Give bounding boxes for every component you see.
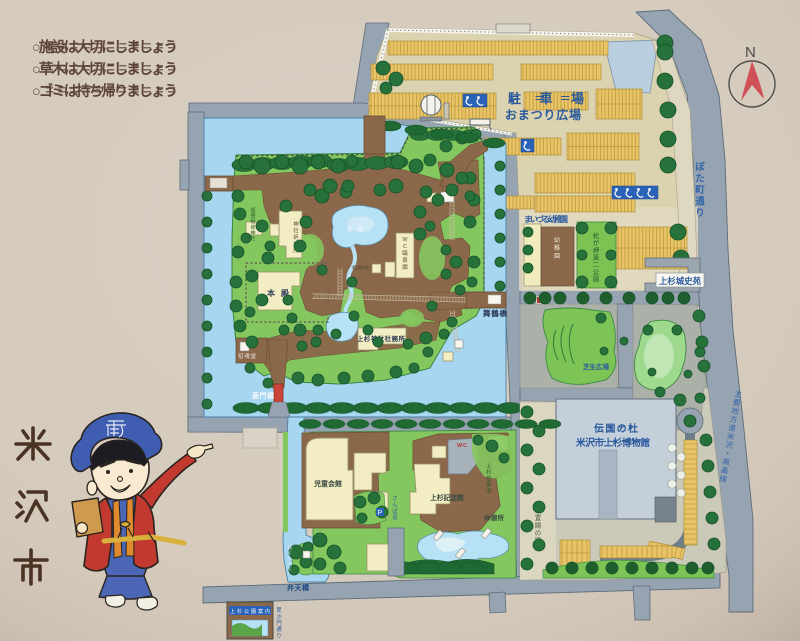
svg-text:駐車場: 駐車場 — [508, 91, 584, 106]
svg-text:の: の — [535, 530, 542, 537]
svg-text:おまつり広場: おまつり広場 — [505, 107, 581, 122]
svg-text:まいづる幼稚園: まいづる幼稚園 — [524, 214, 568, 224]
svg-text:り: り — [276, 633, 282, 640]
svg-text:た: た — [695, 174, 705, 185]
svg-text:招魂堂: 招魂堂 — [238, 352, 256, 360]
svg-text:爵: 爵 — [486, 481, 492, 489]
svg-text:稚: 稚 — [554, 244, 560, 252]
svg-text:芝生広場: 芝生広場 — [583, 362, 610, 371]
svg-text:公: 公 — [593, 269, 600, 276]
svg-text:○施設は大切にしましょう: ○施設は大切にしましょう — [32, 38, 178, 56]
svg-text:児童会館: 児童会館 — [313, 479, 342, 488]
svg-text:上杉城史苑: 上杉城史苑 — [659, 276, 701, 286]
svg-text:幼: 幼 — [554, 236, 560, 244]
svg-text:上: 上 — [486, 462, 492, 470]
svg-text:上杉公園案内: 上杉公園案内 — [230, 608, 270, 615]
svg-text:通: 通 — [276, 625, 282, 633]
svg-text:賜: 賜 — [535, 521, 542, 529]
svg-text:○ゴミは持ち帰りましょう: ○ゴミは持ち帰りましょう — [32, 82, 178, 100]
svg-text:ぽ: ぽ — [392, 507, 398, 515]
svg-text:邸: 邸 — [486, 487, 492, 495]
svg-text:閣: 閣 — [402, 264, 408, 271]
svg-text:P: P — [378, 510, 383, 517]
svg-text:弁天橋: 弁天橋 — [287, 583, 310, 592]
svg-text:園: 園 — [593, 275, 600, 283]
svg-text:沙: 沙 — [276, 613, 282, 620]
svg-text:町: 町 — [695, 185, 705, 196]
svg-text:が: が — [593, 238, 600, 247]
svg-text:伝国の杜: 伝国の杜 — [594, 422, 638, 435]
svg-text:杉: 杉 — [486, 468, 492, 476]
svg-text:り: り — [695, 208, 705, 219]
svg-text:伯: 伯 — [486, 474, 492, 482]
svg-text:C: C — [403, 244, 407, 250]
svg-text:米沢市上杉博物館: 米沢市上杉博物館 — [575, 437, 650, 449]
svg-text:舞鶴橋: 舞鶴橋 — [483, 308, 508, 318]
svg-text:く: く — [288, 566, 293, 571]
svg-text:第: 第 — [593, 253, 600, 262]
svg-text:ん: ん — [392, 501, 398, 508]
svg-text:道: 道 — [392, 513, 398, 521]
svg-text:さ: さ — [392, 495, 398, 502]
svg-text:岬: 岬 — [593, 245, 600, 254]
svg-text:門: 門 — [276, 620, 282, 627]
svg-text:松岬神社: 松岬神社 — [352, 264, 372, 272]
svg-text:○草木は大切にしましょう: ○草木は大切にしましょう — [32, 60, 178, 78]
svg-text:社: 社 — [293, 227, 299, 235]
svg-text:WC: WC — [457, 443, 467, 449]
svg-text:松: 松 — [593, 231, 600, 240]
svg-text:N: N — [745, 44, 756, 61]
svg-text:休憩所: 休憩所 — [483, 513, 505, 522]
svg-text:ぼ: ぼ — [695, 161, 705, 173]
svg-text:泉: 泉 — [402, 256, 408, 264]
svg-text:園: 園 — [554, 253, 560, 260]
svg-text:通: 通 — [695, 197, 705, 208]
svg-text:置: 置 — [535, 514, 542, 522]
svg-text:W: W — [402, 237, 408, 243]
svg-text:臨: 臨 — [402, 249, 408, 257]
svg-text:神: 神 — [293, 220, 299, 228]
svg-text:菱門橋: 菱門橋 — [252, 391, 275, 400]
svg-text:毘: 毘 — [276, 607, 282, 614]
svg-text:二: 二 — [593, 262, 600, 269]
svg-text:上杉記念館: 上杉記念館 — [430, 493, 464, 502]
